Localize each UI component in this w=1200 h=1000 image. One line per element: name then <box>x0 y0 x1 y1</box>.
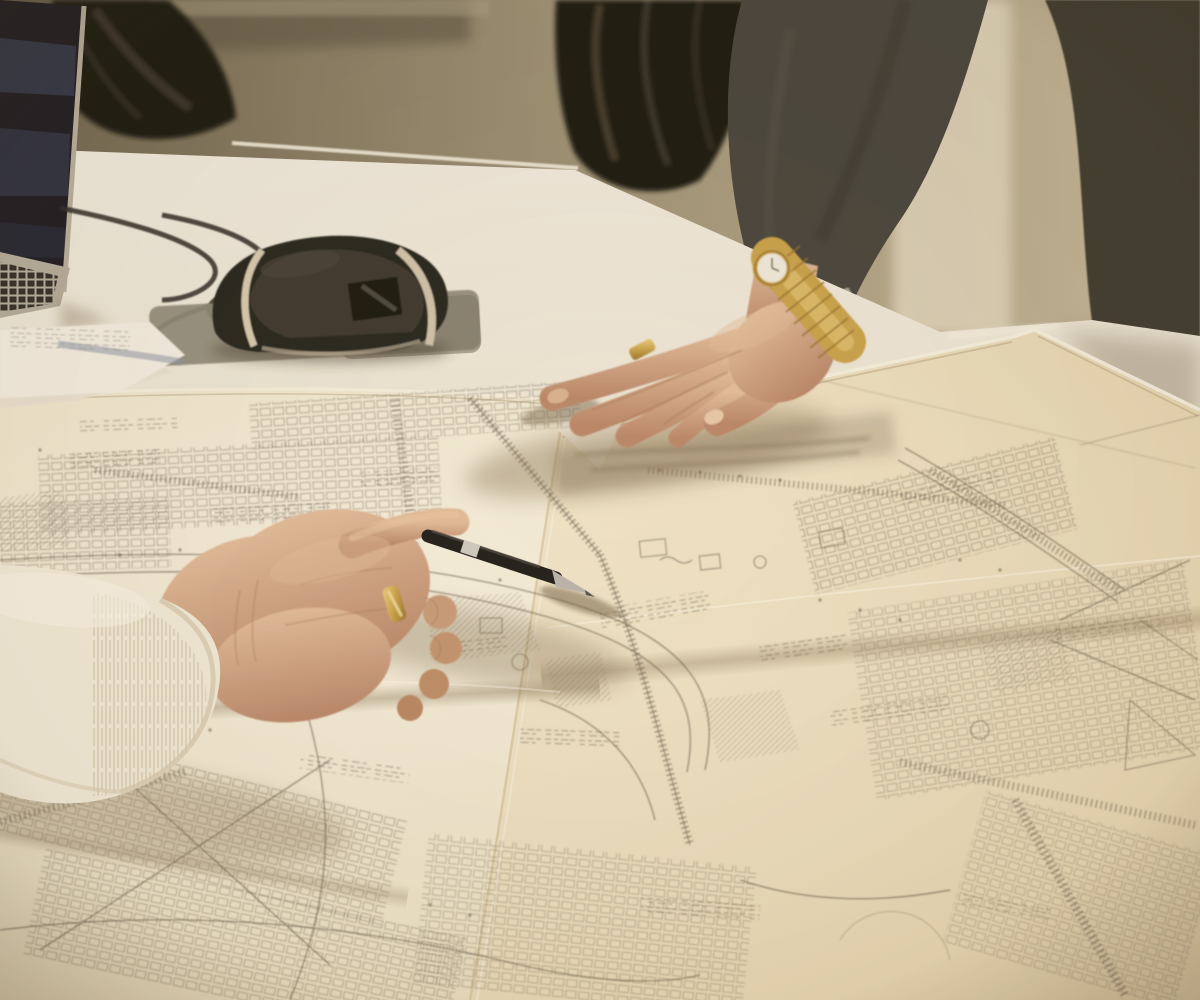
photo-two-people-reviewing-blueprints <box>0 0 1200 1000</box>
vignette <box>0 0 1200 1000</box>
scene-canvas <box>0 0 1200 1000</box>
